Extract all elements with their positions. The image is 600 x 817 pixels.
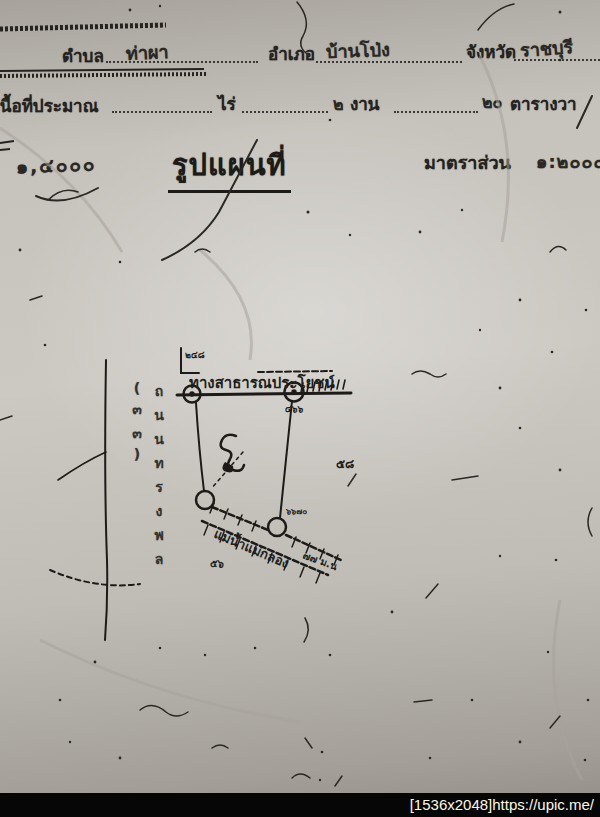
watermark-bar: [1536x2048]https://upic.me/ [0, 793, 600, 817]
sketch-labels: ทางสาธารณประโยชน์ ๒๔๘ ๔๖๖ ๕๘ ๖๖๗๐ ๕๖ ๗๗ … [185, 350, 354, 572]
boundary-marker-circle [268, 518, 286, 536]
marker-note-sw: ๗๗ ม.น [301, 550, 339, 573]
plot-left-edge [196, 403, 204, 491]
marker-note-s: ๕๖ [210, 558, 225, 569]
top-road-label: ทางสาธารณประโยชน์ [189, 373, 335, 392]
scribble-mark [211, 435, 244, 489]
photographed-document: ตำบล ท่าผา อำเภอ บ้านโป่ง จังหวัด ราชบุร… [0, 0, 600, 817]
marker-note-ne: ๔๖๖ [285, 404, 304, 414]
marker-note-top: ๒๔๘ [185, 350, 205, 360]
plot-right-edge [280, 401, 292, 518]
watermark-text: [1536x2048]https://upic.me/ [410, 796, 594, 813]
left-road [50, 360, 140, 640]
marker-note-se: ๖๖๗๐ [285, 507, 307, 516]
marker-note-e: ๕๘ [336, 457, 354, 471]
land-sketch-svg: ทางสาธารณประโยชน์ ๒๔๘ ๔๖๖ ๕๘ ๖๖๗๐ ๕๖ ๗๗ … [0, 0, 600, 817]
form-rule-lines [0, 25, 206, 150]
